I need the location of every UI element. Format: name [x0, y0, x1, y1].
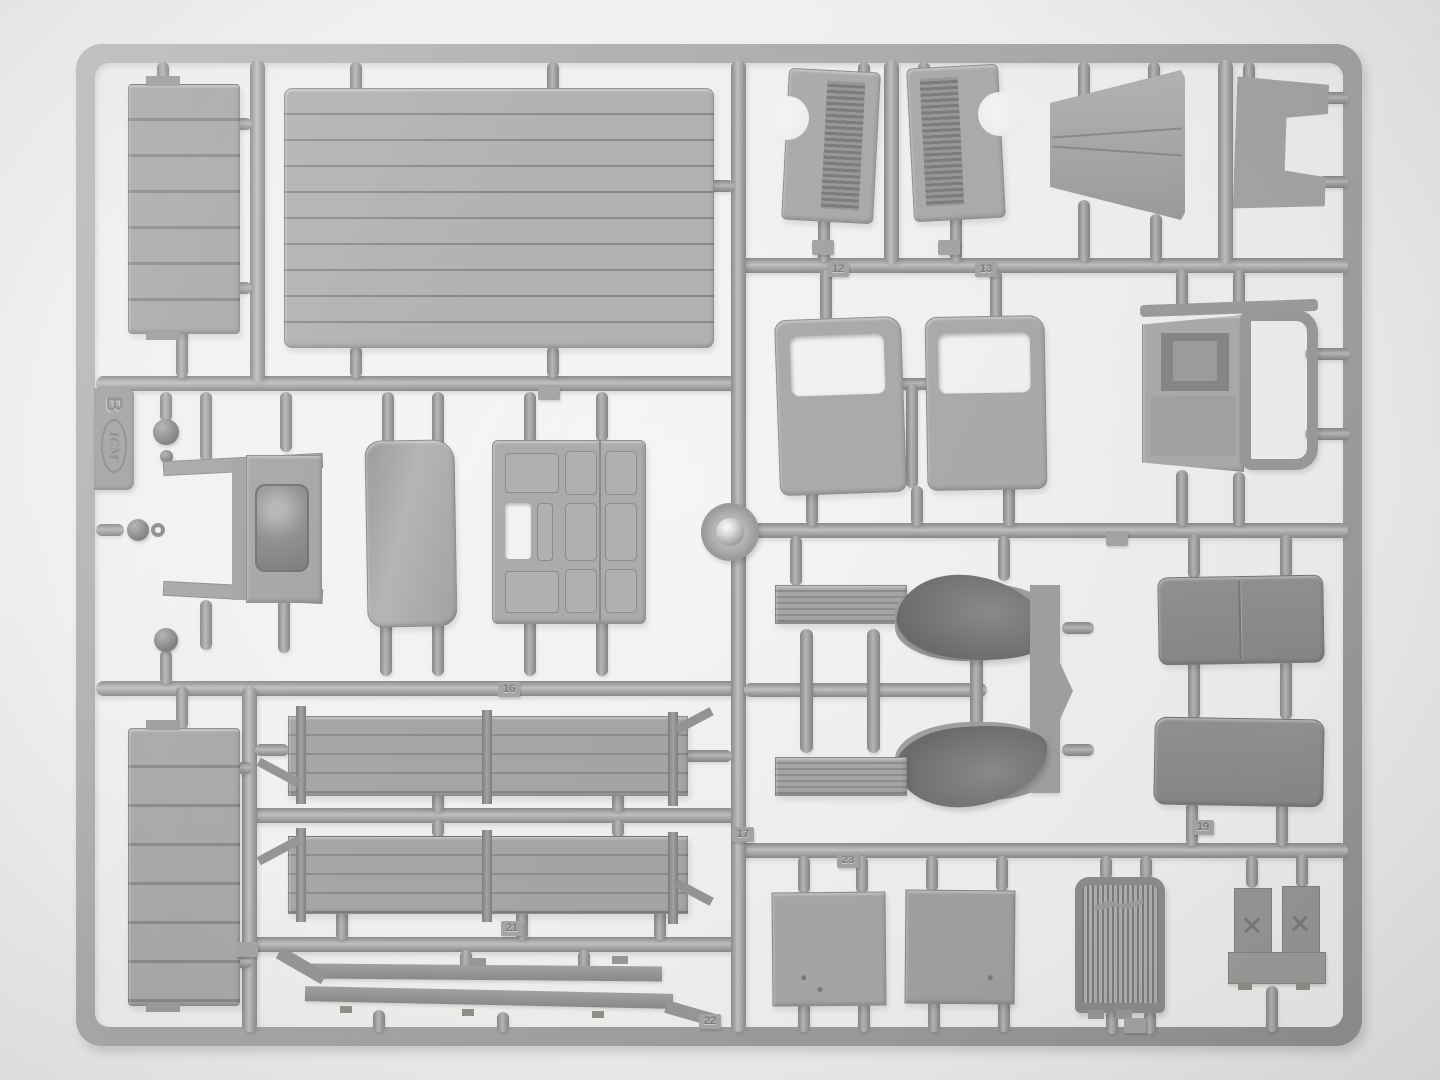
gate-stub	[596, 616, 608, 676]
gate-stub	[926, 856, 938, 892]
gate-stub	[1266, 986, 1278, 1032]
runner-fender-v3	[970, 652, 983, 726]
gate-stub	[1280, 535, 1292, 579]
gate-stub	[524, 618, 536, 676]
gate-stub	[1003, 484, 1015, 526]
seat-divider-line	[1238, 581, 1241, 659]
part-stake-side-panel-bottom-left	[128, 728, 240, 1006]
dash-pocket	[1161, 333, 1229, 391]
part-number-tag-19: 19	[1192, 820, 1214, 835]
stake-post	[482, 830, 492, 922]
part-running-board-top	[775, 585, 907, 624]
gate-stub	[798, 1002, 810, 1032]
hood-ridge-line	[1052, 145, 1182, 156]
runner-h3	[246, 808, 742, 823]
gate-stub	[432, 618, 444, 676]
gate-stub	[998, 536, 1010, 581]
part-number-tag-16: 16	[498, 682, 520, 697]
gate-stub	[1176, 470, 1188, 526]
gate-stub	[684, 750, 732, 762]
part-chassis-strip-1	[312, 963, 662, 981]
part-cab-door-right	[924, 315, 1047, 491]
runner-fender-v1	[800, 629, 813, 753]
part-number-tag-blank	[938, 240, 960, 255]
part-cargo-bed-floor	[284, 88, 714, 348]
part-cab-roof-panel	[364, 439, 457, 628]
ball-joint-part	[127, 519, 149, 541]
panel-tab	[146, 1002, 180, 1012]
rear-wall-ridge	[599, 441, 601, 623]
gate-stub	[1280, 660, 1292, 720]
gate-stub	[1233, 472, 1245, 526]
runner-v3	[884, 60, 899, 264]
grille-foot	[1088, 1010, 1104, 1019]
sprue-photo: B ICM	[0, 0, 1440, 1080]
part-number-tag-blank	[1124, 1018, 1146, 1033]
part-number-tag-13: 13	[975, 262, 997, 277]
gate-stub	[524, 392, 536, 444]
part-floor-panel-left	[772, 892, 887, 1007]
part-number-tag-22: 22	[699, 1014, 721, 1029]
part-cab-door-left	[774, 316, 907, 496]
part-floor-panel-right	[905, 890, 1016, 1005]
gate-stub	[280, 392, 292, 452]
part-number-tag-blank	[236, 942, 258, 957]
part-number-tag-17: 17	[732, 827, 754, 842]
panel-tab	[146, 720, 180, 730]
ball-joint-part	[153, 419, 179, 445]
part-seat-back-panel	[1153, 717, 1325, 808]
part-rear-window-frame	[160, 445, 325, 610]
rear-window-glass	[255, 484, 309, 572]
part-seat-cushion-panel	[1157, 575, 1325, 666]
stake-post	[296, 706, 306, 804]
gate-stub	[1188, 535, 1200, 579]
injection-gate-disc	[701, 503, 759, 561]
gate-stub	[1188, 660, 1200, 720]
sprue-letter: B	[101, 396, 127, 412]
door-window-opening	[790, 333, 886, 396]
part-windshield-frame	[1240, 310, 1318, 470]
gate-stub	[654, 910, 666, 940]
icm-logo-tab: B ICM	[94, 388, 134, 490]
gate-stub	[798, 856, 810, 894]
hood-ridge-line	[1052, 127, 1182, 138]
part-hood-side-louvered-right	[906, 64, 1006, 223]
part-number-tag-23: 23	[837, 853, 859, 868]
gate-stub	[996, 856, 1008, 892]
chassis-strip-foot	[592, 1011, 604, 1018]
louver-vents	[821, 81, 866, 211]
gate-stub	[1296, 854, 1308, 888]
part-running-board-bottom	[775, 757, 907, 796]
ball-joint-part	[154, 628, 178, 652]
gate-stub	[928, 1000, 940, 1032]
gate-stub	[1062, 622, 1094, 634]
gate-stub	[790, 536, 802, 586]
seat-base	[1151, 396, 1236, 456]
runner-h2	[96, 681, 742, 696]
runner-fender-v2	[867, 629, 880, 753]
door-window-opening	[938, 332, 1031, 394]
gate-stub	[373, 1010, 385, 1032]
gate-stub	[820, 270, 832, 322]
rear-window-cutout	[505, 503, 531, 559]
runner-v5	[242, 686, 257, 1032]
stake-post	[482, 710, 492, 804]
gate-stub	[1276, 802, 1288, 846]
gate-stub	[350, 346, 362, 378]
gate-stub	[547, 346, 559, 378]
part-number-tag-blank	[812, 240, 834, 255]
gate-stub	[160, 392, 172, 422]
gate-stub	[1150, 214, 1162, 262]
part-frame-bracket	[1228, 884, 1324, 990]
gate-stub	[160, 650, 172, 684]
gate-stub	[336, 910, 348, 940]
part-radiator-grille	[1075, 877, 1165, 1013]
part-number-tag-blank	[538, 385, 560, 400]
gate-stub	[998, 1000, 1010, 1032]
runner-fender-h	[744, 683, 987, 697]
gate-stub	[96, 524, 124, 536]
chassis-strip-foot	[340, 1006, 352, 1013]
panel-tab	[146, 330, 180, 340]
part-cab-rear-wall	[492, 440, 646, 624]
runner-door-bridge-v	[906, 384, 918, 488]
runner-h6	[733, 523, 1348, 538]
runner-v4	[1218, 60, 1233, 264]
gate-stub	[990, 270, 1002, 322]
part-stake-side-panel-top-left	[128, 84, 240, 334]
runner-h1	[96, 376, 742, 391]
gate-stub	[497, 1012, 509, 1032]
gate-stub	[255, 744, 289, 756]
fender-notch	[765, 96, 809, 140]
chassis-strip-step	[612, 956, 628, 964]
part-number-tag-21: 21	[501, 921, 523, 936]
part-cab-interior-block	[1142, 315, 1244, 472]
fender-notch	[978, 92, 1022, 136]
gate-stub	[596, 392, 608, 442]
part-number-tag-blank	[1106, 531, 1128, 546]
panel-tab	[146, 76, 180, 86]
runner-h4	[246, 937, 742, 952]
louver-vents	[920, 77, 965, 207]
runner-h7	[733, 843, 1348, 858]
part-number-tag-12: 12	[827, 262, 849, 277]
part-hood-side-louvered-left	[781, 68, 881, 225]
gate-stub	[1078, 200, 1090, 262]
gate-stub	[858, 1002, 870, 1032]
gate-stub	[911, 486, 923, 526]
chassis-strip-foot	[462, 1009, 474, 1016]
grille-slats	[1082, 885, 1158, 1003]
chassis-strip-step	[470, 958, 486, 966]
stake-post	[668, 832, 678, 924]
gate-stub	[1062, 744, 1094, 756]
icm-logo: ICM	[101, 419, 127, 473]
runner-v2	[250, 60, 265, 382]
